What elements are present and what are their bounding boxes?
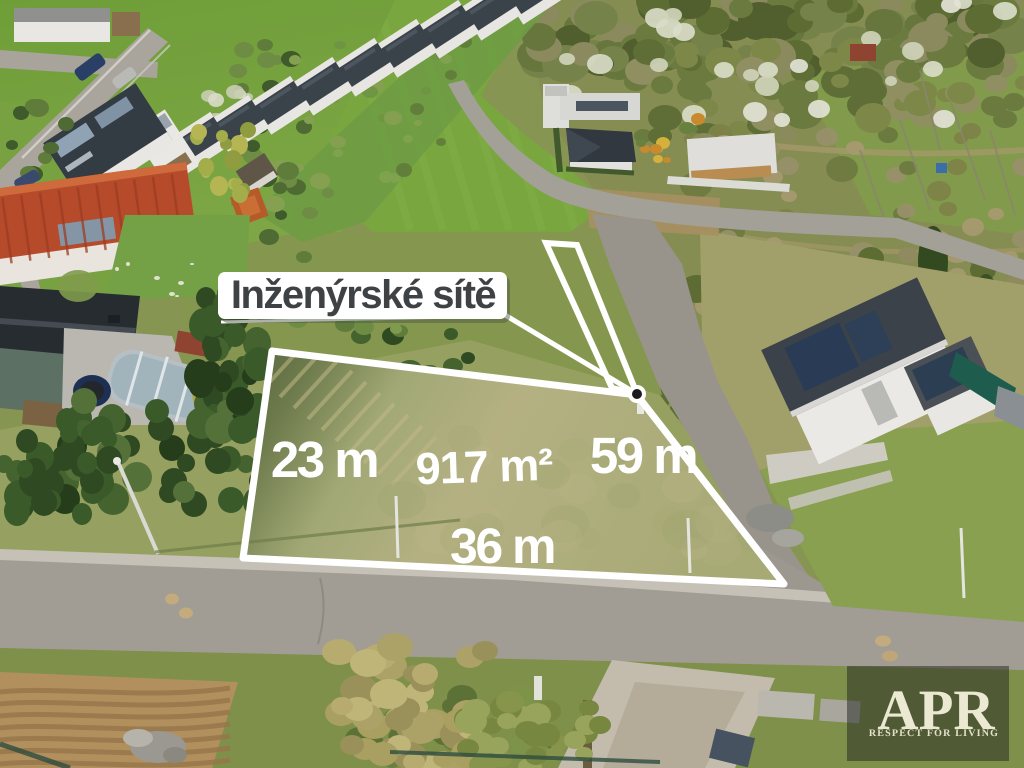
svg-text:59 m: 59 m (590, 427, 696, 484)
svg-text:RESPECT FOR LIVING: RESPECT FOR LIVING (869, 728, 999, 739)
svg-text:Inženýrské sítě: Inženýrské sítě (231, 273, 496, 317)
svg-text:36 m: 36 m (450, 518, 554, 574)
svg-text:23 m: 23 m (271, 431, 377, 488)
svg-text:917 m²: 917 m² (415, 439, 554, 495)
